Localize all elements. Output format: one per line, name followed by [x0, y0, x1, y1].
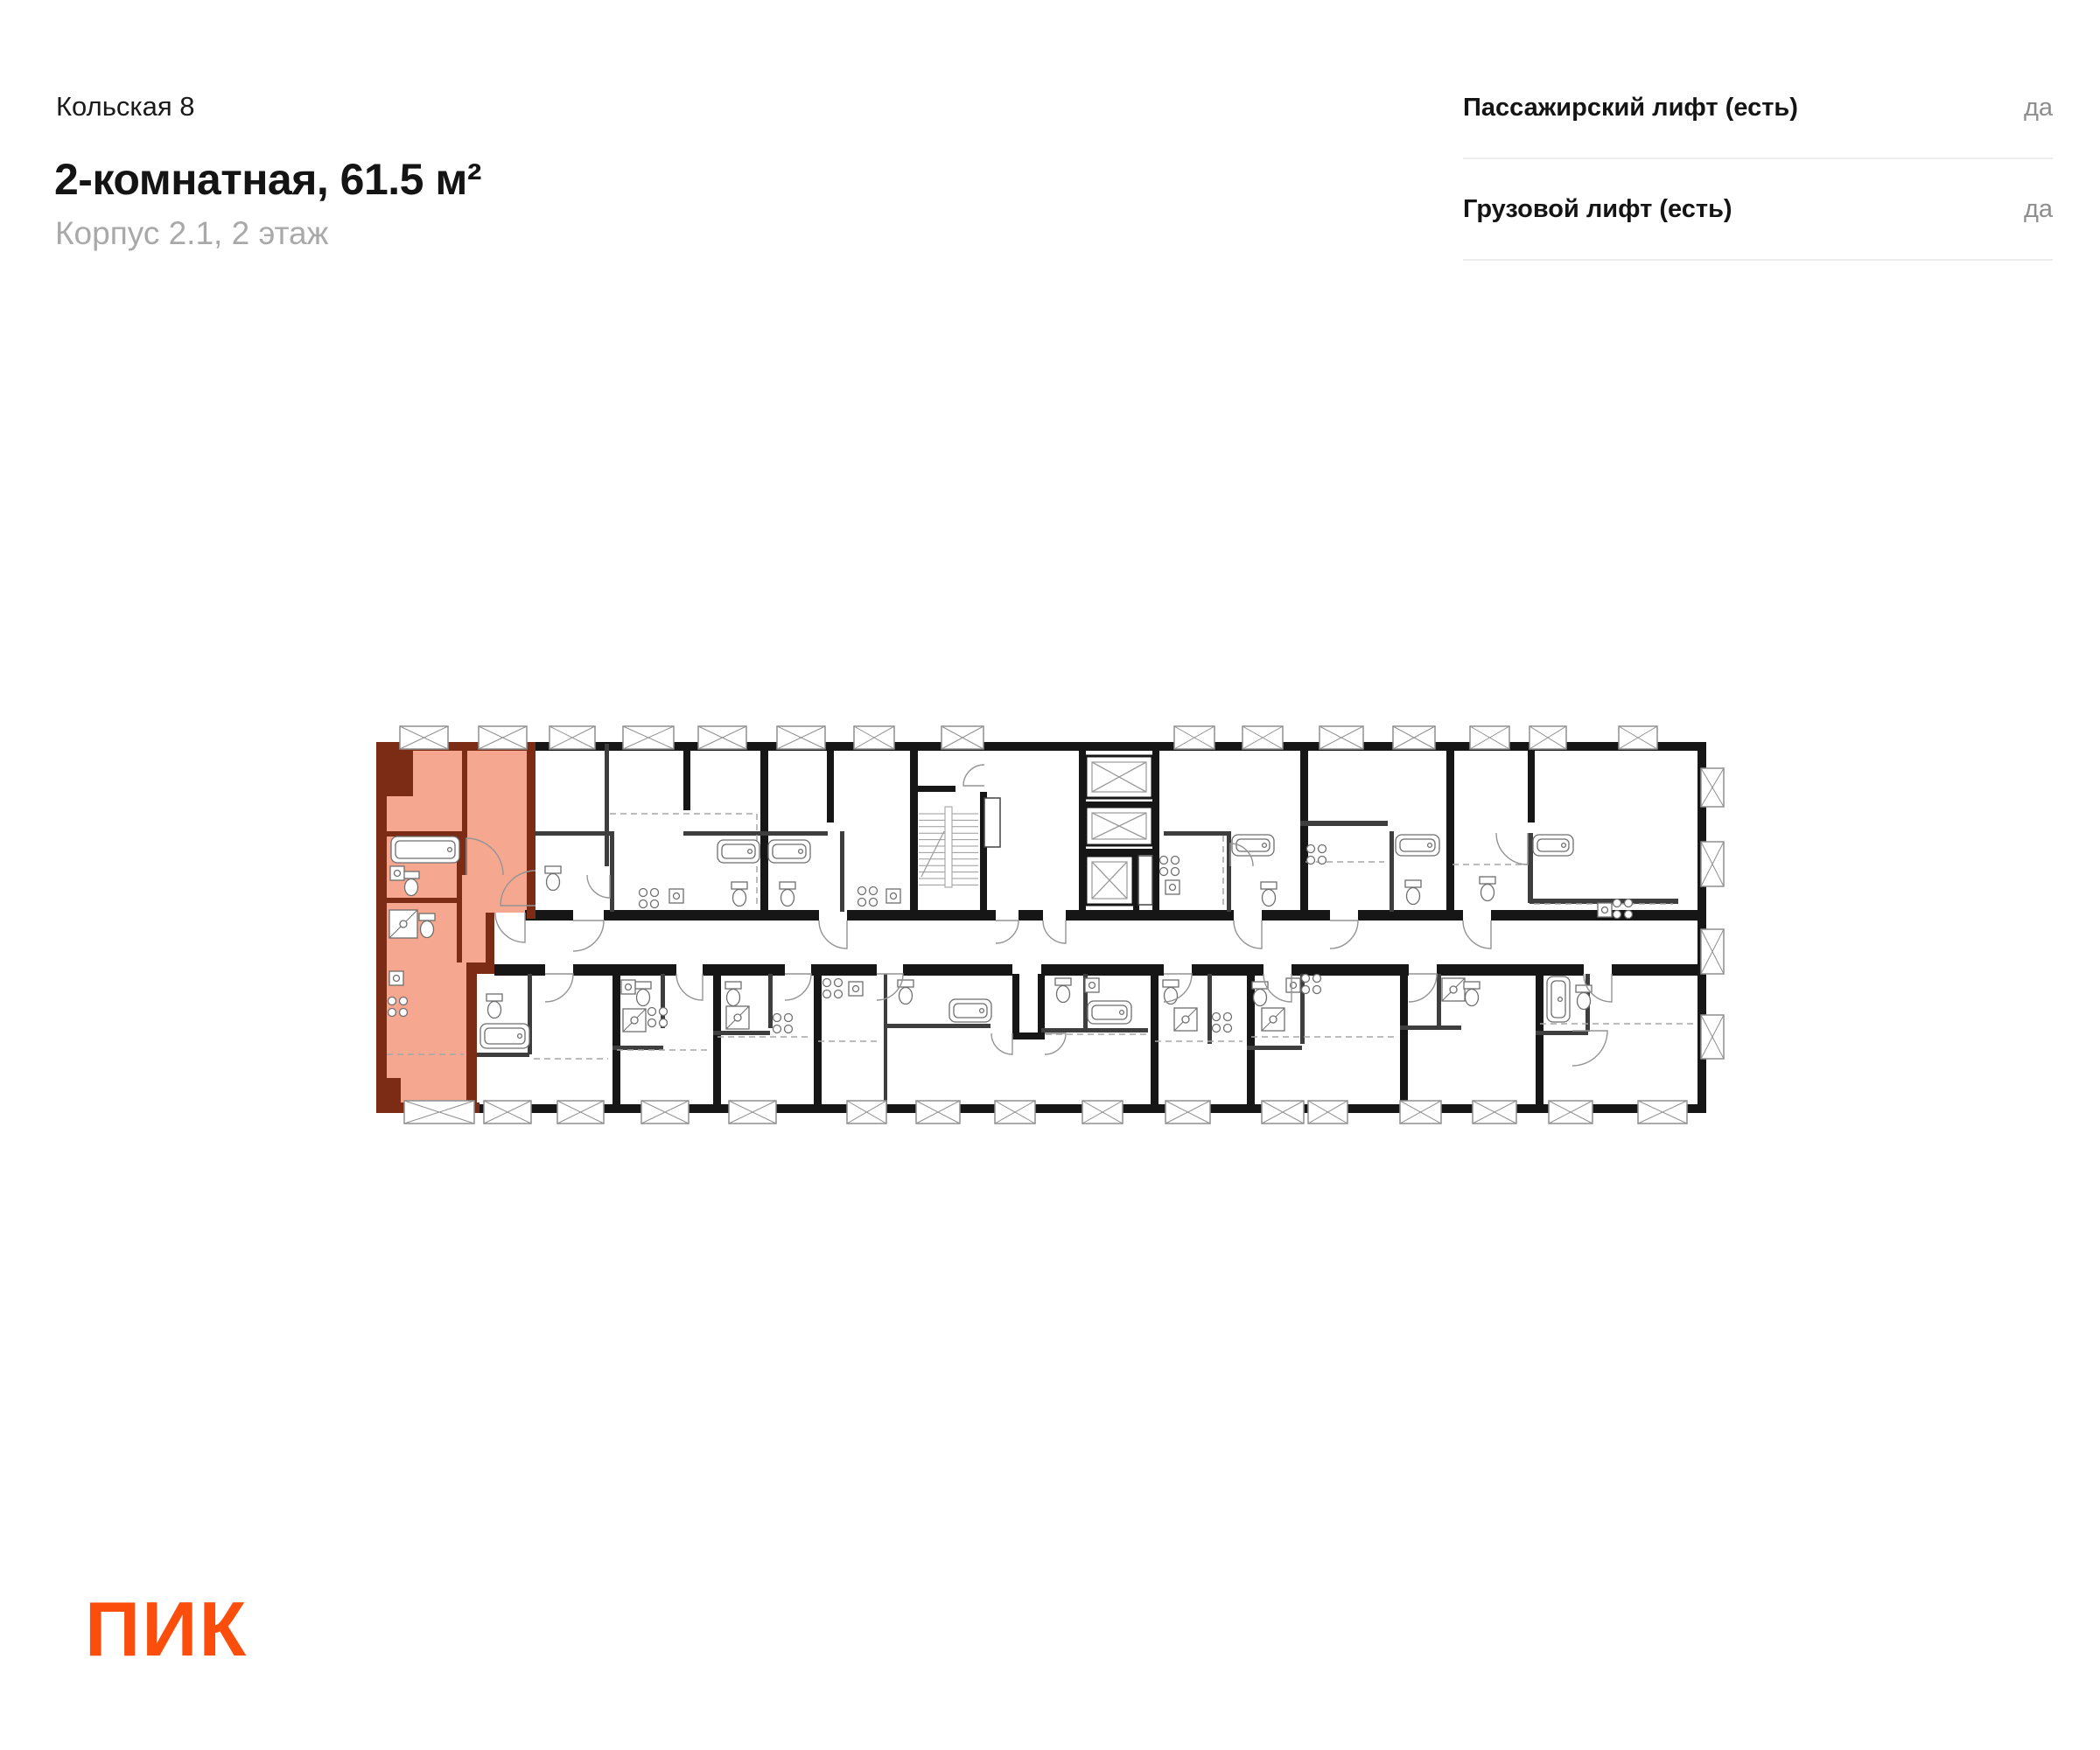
wall — [847, 910, 910, 920]
door-arc — [587, 875, 610, 898]
wall — [610, 831, 614, 912]
wall — [605, 744, 609, 866]
toilet-icon — [486, 994, 502, 1001]
wall — [887, 1024, 990, 1028]
wall — [387, 831, 462, 836]
toilet-icon — [1407, 888, 1420, 905]
shower-drain-icon — [1270, 1016, 1277, 1023]
stove-icon — [823, 990, 831, 998]
toilet-icon — [488, 1002, 501, 1018]
wall — [387, 1078, 401, 1102]
toilet-icon — [1261, 882, 1277, 889]
stove-icon — [785, 1014, 793, 1022]
wall — [768, 974, 773, 1028]
stove-icon — [1172, 868, 1179, 876]
door-arc — [676, 974, 703, 1000]
wall — [1012, 974, 1019, 1033]
stove-icon — [785, 1025, 793, 1033]
wall — [987, 910, 996, 920]
shower-drain-icon — [734, 1014, 741, 1021]
sink-icon — [674, 893, 680, 899]
toilet-icon — [419, 913, 435, 920]
sink-icon — [853, 986, 859, 992]
door-arc — [1496, 833, 1528, 864]
wall — [1151, 974, 1158, 1104]
wall — [1262, 910, 1330, 920]
wall — [535, 831, 614, 836]
stove-icon — [835, 979, 843, 987]
wall — [1012, 1032, 1045, 1039]
bathtub-drain-icon — [980, 1009, 984, 1013]
page-title: 2-комнатная, 61.5 м² — [54, 154, 481, 205]
toilet-icon — [1464, 982, 1480, 989]
shower-drain-icon — [400, 920, 407, 927]
wall — [494, 964, 545, 976]
toilet-icon — [637, 990, 650, 1006]
bathtub-drain-icon — [799, 850, 803, 854]
bathtub-drain-icon — [748, 850, 752, 854]
wall — [910, 786, 955, 792]
stair-stringer — [945, 807, 952, 887]
toilet-icon — [733, 890, 746, 906]
bathtub-drain-icon — [1428, 843, 1432, 848]
wall — [1400, 1025, 1461, 1030]
wall — [612, 974, 620, 1104]
bathtub-drain-icon — [1562, 843, 1566, 848]
wall — [1389, 831, 1394, 912]
sink-icon — [891, 893, 897, 899]
stove-icon — [1313, 986, 1321, 994]
door-arc — [1234, 920, 1262, 948]
wall — [814, 974, 822, 1104]
stove-icon — [1313, 975, 1321, 983]
stove-icon — [773, 1025, 781, 1033]
wall — [1437, 974, 1441, 1028]
info-label: Пассажирский лифт (есть) — [1463, 94, 1798, 122]
project-name: Кольская 8 — [56, 91, 194, 122]
stove-icon — [1319, 845, 1326, 853]
wall — [713, 1031, 770, 1035]
stove-icon — [1613, 899, 1621, 907]
wall — [376, 742, 387, 1113]
stove-icon — [1224, 1013, 1232, 1021]
toilet-icon — [1057, 986, 1070, 1003]
info-value: да — [2024, 195, 2053, 224]
stove-icon — [640, 889, 647, 897]
wall — [1164, 831, 1230, 836]
toilet-icon — [731, 882, 747, 889]
stove-icon — [823, 979, 831, 987]
wall — [1041, 964, 1164, 976]
bathtub-icon — [395, 841, 455, 858]
stove-icon — [1625, 899, 1633, 907]
toilet-icon — [725, 982, 741, 989]
toilet-icon — [635, 982, 651, 989]
stove-icon — [1213, 1013, 1221, 1021]
info-row-cargo-lift: Грузовой лифт (есть) да — [1463, 159, 2053, 261]
wall — [1300, 821, 1388, 826]
wall — [1437, 964, 1584, 976]
wall — [387, 744, 413, 796]
shower-drain-icon — [631, 1017, 638, 1024]
stove-icon — [1307, 857, 1315, 864]
wall — [910, 742, 918, 920]
stove-icon — [648, 1019, 656, 1027]
toilet-icon — [547, 874, 560, 891]
wall — [604, 910, 819, 920]
door-arc — [545, 974, 573, 1002]
bathtub-drain-icon — [518, 1034, 522, 1039]
stove-icon — [648, 1008, 656, 1016]
wall — [1446, 742, 1454, 920]
door-arc — [573, 920, 604, 951]
toilet-icon — [727, 990, 740, 1006]
door-arc — [996, 920, 1018, 943]
shaft-box — [984, 798, 1000, 847]
info-value: да — [2024, 94, 2053, 122]
door-arc — [1330, 920, 1358, 948]
info-row-passenger-lift: Пассажирский лифт (есть) да — [1463, 58, 2053, 159]
stove-icon — [870, 899, 878, 906]
wall — [827, 742, 834, 822]
sink-icon — [395, 871, 401, 877]
door-arc — [1043, 920, 1066, 943]
toilet-icon — [405, 879, 418, 896]
stove-icon — [388, 997, 396, 1005]
stair-arrow — [921, 831, 944, 877]
wall — [1291, 964, 1409, 976]
stove-icon — [1224, 1025, 1232, 1032]
sink-icon — [626, 984, 632, 990]
sink-icon — [394, 976, 400, 982]
wall — [1207, 974, 1212, 1044]
door-arc — [495, 913, 525, 942]
page-subtitle: Корпус 2.1, 2 этаж — [55, 215, 328, 252]
wall — [1400, 974, 1408, 1104]
wall — [840, 831, 844, 912]
info-label: Грузовой лифт (есть) — [1463, 195, 1732, 224]
stove-icon — [870, 887, 878, 895]
wall — [1528, 833, 1533, 903]
stove-icon — [1160, 857, 1168, 864]
wall — [527, 744, 535, 919]
stove-icon — [1160, 868, 1168, 876]
wall — [903, 964, 1012, 976]
wall — [1066, 910, 1079, 920]
sink-icon — [1089, 983, 1095, 989]
shaft-box — [1138, 856, 1152, 905]
toilet-icon — [1480, 877, 1495, 884]
pik-logo[interactable]: ПИК — [85, 1591, 248, 1668]
door-arc — [785, 974, 811, 1000]
toilet-icon — [1254, 990, 1267, 1006]
wall — [1612, 964, 1706, 976]
stove-icon — [640, 900, 647, 908]
toilet-icon — [1481, 885, 1494, 901]
toilet-icon — [899, 988, 913, 1004]
toilet-icon — [1405, 880, 1421, 887]
door-arc — [991, 1033, 1012, 1054]
door-arc — [963, 765, 984, 786]
page: Кольская 8 2-комнатная, 61.5 м² Корпус 2… — [0, 0, 2100, 1750]
toilet-icon — [1263, 890, 1276, 906]
toilet-icon — [781, 890, 794, 906]
wall — [1536, 974, 1543, 1104]
bathtub-drain-icon — [1120, 1011, 1124, 1015]
wall — [1041, 1028, 1148, 1032]
stove-icon — [388, 1009, 396, 1017]
stove-icon — [400, 1009, 408, 1017]
wall — [466, 974, 477, 1113]
wall — [713, 974, 721, 1104]
bathtub-drain-icon — [1558, 997, 1563, 1002]
wall — [477, 1053, 529, 1057]
door-arc — [1463, 920, 1491, 948]
wall — [1300, 974, 1305, 1044]
wall — [1018, 910, 1043, 920]
wall — [1358, 910, 1463, 920]
stove-icon — [858, 887, 866, 895]
toilet-icon — [1163, 980, 1179, 987]
wall — [466, 962, 494, 974]
bathtub-drain-icon — [1263, 843, 1267, 848]
stove-icon — [858, 899, 866, 906]
wall — [1159, 910, 1234, 920]
toilet-icon — [403, 871, 419, 878]
wall — [683, 831, 828, 836]
stove-icon — [1307, 845, 1315, 853]
floor-plan-container — [363, 710, 1737, 1141]
toilet-icon — [1466, 990, 1479, 1006]
bathtub-drain-icon — [448, 848, 452, 852]
wall — [1300, 742, 1308, 920]
wall — [884, 974, 887, 1104]
toilet-icon — [545, 866, 561, 873]
toilet-icon — [1055, 978, 1071, 985]
elevator-info: Пассажирский лифт (есть) да Грузовой лиф… — [1463, 58, 2053, 261]
stove-icon — [1613, 911, 1621, 919]
stove-icon — [660, 1008, 668, 1016]
wall — [683, 742, 690, 810]
stove-icon — [773, 1014, 781, 1022]
stove-icon — [400, 997, 408, 1005]
wall — [387, 898, 462, 903]
stove-icon — [651, 900, 659, 908]
door-arc — [1572, 1031, 1607, 1066]
stove-icon — [1625, 911, 1633, 919]
wall — [1247, 974, 1255, 1104]
toilet-icon — [780, 882, 795, 889]
shower-drain-icon — [1182, 1016, 1189, 1023]
wall — [910, 910, 987, 920]
wall — [1079, 910, 1159, 920]
floor-plan — [363, 710, 1737, 1141]
door-arc — [1045, 1033, 1066, 1054]
sink-icon — [1602, 907, 1608, 913]
shower-drain-icon — [1450, 986, 1457, 993]
wall — [1079, 849, 1159, 855]
wall — [1536, 1031, 1588, 1035]
sink-icon — [1170, 885, 1176, 891]
stove-icon — [651, 889, 659, 897]
door-arc — [819, 920, 847, 948]
stove-icon — [1302, 975, 1310, 983]
stove-icon — [835, 990, 843, 998]
stove-icon — [1319, 857, 1326, 864]
wall — [1247, 1046, 1302, 1050]
stove-icon — [660, 1019, 668, 1027]
wall — [1038, 974, 1045, 1033]
stove-icon — [1213, 1025, 1221, 1032]
toilet-icon — [1578, 993, 1591, 1010]
door-arc — [1409, 974, 1437, 1002]
wall — [1528, 742, 1535, 822]
stove-icon — [1172, 857, 1179, 864]
toilet-icon — [421, 921, 434, 938]
stove-icon — [1302, 986, 1310, 994]
